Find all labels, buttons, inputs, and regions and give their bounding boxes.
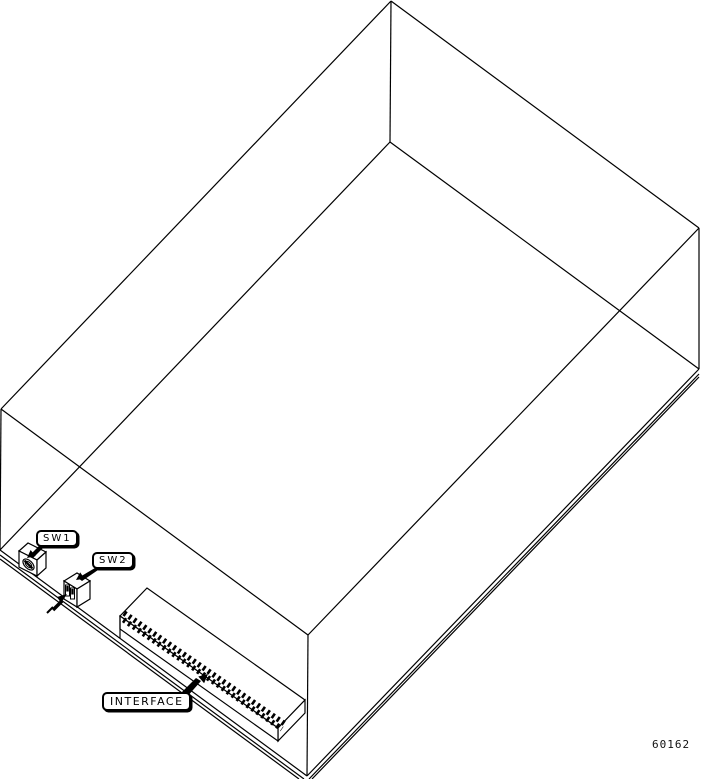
pcb-edge-lines xyxy=(0,374,699,779)
chassis-wireframe xyxy=(0,1,699,776)
sw2-leader-arrow xyxy=(76,568,101,581)
sw2-callout-label: SW2 xyxy=(92,552,134,569)
figure-canvas: SW1 SW2 INTERFACE 60162 xyxy=(0,0,701,779)
figure-linework xyxy=(0,0,701,779)
sw1-callout-label: SW1 xyxy=(36,530,78,547)
interface-callout-label: INTERFACE xyxy=(102,692,191,711)
figure-number: 60162 xyxy=(652,738,690,751)
